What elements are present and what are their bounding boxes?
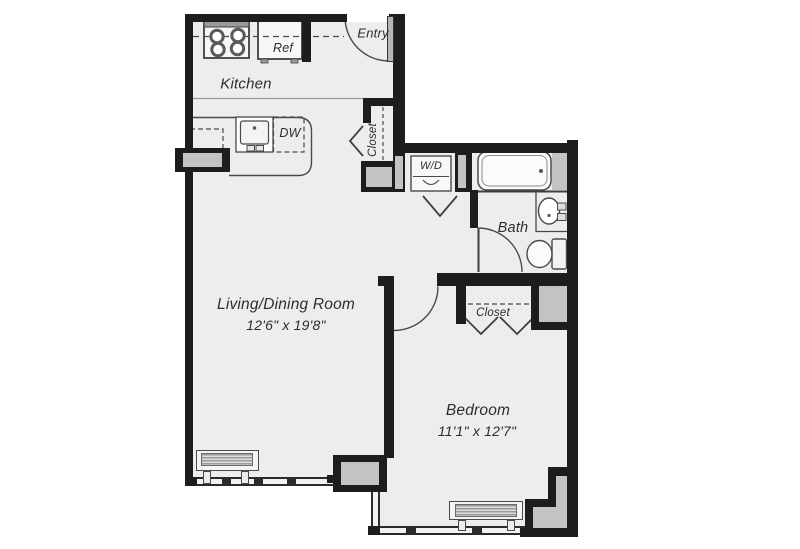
column-step-fill bbox=[556, 476, 567, 528]
wall-laundry-bath-top bbox=[405, 143, 578, 153]
window-mullion bbox=[254, 477, 263, 486]
floor-hall-bath bbox=[393, 153, 567, 282]
wall-column-nub bbox=[327, 475, 334, 483]
window-mullion bbox=[287, 477, 296, 486]
radiator-leg bbox=[458, 520, 466, 531]
wall-closet-right-bottom bbox=[531, 322, 570, 330]
column-left-wall bbox=[183, 153, 222, 167]
living-dining-label: Living/Dining Room bbox=[217, 296, 355, 314]
bedroom-dimensions: 11'1" x 12'7" bbox=[438, 423, 516, 439]
column-step-fill bbox=[533, 507, 556, 528]
refrigerator-label: Ref bbox=[273, 41, 293, 55]
window-corner-joint bbox=[368, 526, 380, 535]
wall-entry-closet-stub bbox=[363, 98, 371, 123]
column-closet-right bbox=[539, 286, 567, 322]
wall-window-corner bbox=[185, 477, 197, 486]
wall-bedroom-left bbox=[384, 276, 394, 458]
window-mullion bbox=[222, 477, 231, 486]
living-dining-dimensions: 12'6" x 19'8" bbox=[246, 317, 325, 333]
column-divider bbox=[458, 155, 466, 188]
bedroom-label: Bedroom bbox=[446, 402, 510, 420]
washer-dryer-label: W/D bbox=[420, 160, 442, 172]
radiator-leg bbox=[241, 471, 249, 484]
wall-bath-left bbox=[470, 190, 478, 228]
wall-closet-left-stub bbox=[456, 286, 466, 324]
entry-label: Entry bbox=[357, 26, 388, 41]
wall-step bbox=[525, 499, 533, 530]
window-bedroom-side bbox=[371, 490, 380, 527]
wall-top-left bbox=[185, 14, 347, 22]
column-below-closet bbox=[366, 167, 392, 187]
column-living-se bbox=[341, 462, 379, 485]
dishwasher-label: DW bbox=[279, 126, 300, 140]
wall-left bbox=[185, 14, 193, 477]
window-mullion bbox=[472, 526, 482, 535]
column-tub-right bbox=[552, 153, 567, 190]
kitchen-label: Kitchen bbox=[220, 76, 271, 93]
bath-label: Bath bbox=[498, 220, 529, 236]
entry-closet-label: Closet bbox=[367, 123, 379, 157]
radiator-leg bbox=[203, 471, 211, 484]
column-wd-side bbox=[395, 156, 403, 189]
window-living bbox=[197, 477, 333, 486]
radiator-leg bbox=[507, 520, 515, 531]
radiator-bedroom-fins bbox=[455, 504, 517, 517]
bedroom-closet-label: Closet bbox=[476, 307, 510, 319]
radiator-living-fins bbox=[201, 453, 253, 466]
wall-right bbox=[567, 140, 578, 537]
wall-bedroom-top bbox=[437, 273, 578, 286]
wall-ref-stub bbox=[302, 14, 311, 62]
window-bedroom bbox=[379, 526, 527, 535]
window-mullion bbox=[406, 526, 416, 535]
floor-plan: Kitchen Entry Closet Ref DW W/D Bath Clo… bbox=[0, 0, 800, 549]
